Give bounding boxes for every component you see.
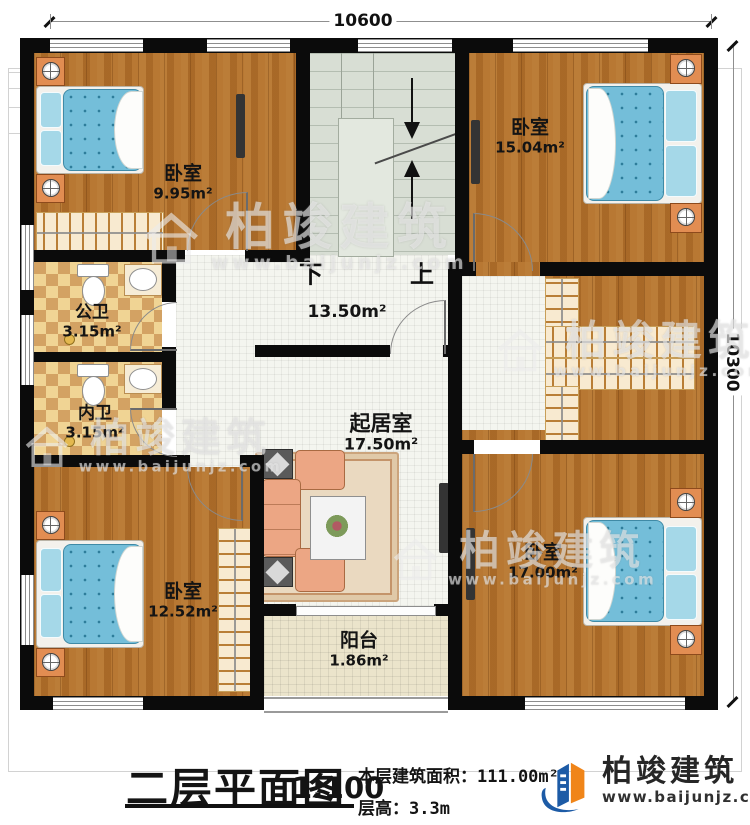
- wall-bedroom4-right: [250, 455, 264, 710]
- room-label-public-bathroom: 公卫 3.15m²: [62, 304, 121, 341]
- wall-stairs-bedroom2: [455, 38, 469, 262]
- floor-height-value: 3.3m: [409, 799, 450, 819]
- stair-arrow-stem: [411, 78, 413, 122]
- wall-outer-right: [704, 38, 718, 710]
- lamp-icon: [677, 493, 695, 511]
- nightstand: [670, 54, 702, 84]
- window: [21, 225, 34, 290]
- tv-icon: [471, 120, 480, 184]
- nightstand: [36, 57, 65, 86]
- room-area: 17.00m²: [508, 564, 578, 581]
- room-label-bedroom-top-left: 卧室 9.95m²: [153, 163, 212, 202]
- nightstand: [670, 203, 702, 233]
- room-name: 公卫: [75, 304, 109, 324]
- room-area: 3.15m²: [65, 424, 124, 441]
- wall-balcony-left: [250, 604, 296, 616]
- wall-bedroom1-stairs: [296, 38, 310, 262]
- bed-pillow: [40, 130, 62, 166]
- bed-blanket: [114, 91, 143, 169]
- window: [358, 39, 452, 52]
- plant-icon: [326, 515, 348, 537]
- room-area: 1.86m²: [329, 652, 388, 669]
- stair-arrow-stem: [411, 177, 413, 219]
- side-table: [262, 557, 293, 587]
- hall-area-label: 13.50m²: [308, 302, 387, 322]
- room-name: 阳台: [340, 630, 378, 652]
- bed-pillow: [40, 548, 62, 592]
- dimension-height: 10300: [722, 328, 742, 395]
- wardrobe: [218, 528, 252, 692]
- floor-plan-sheet: 卧室 9.95m² 卧室 15.04m² 公卫 3.15m² 内卫 3.15m²…: [0, 0, 750, 825]
- wall-bedroom3-top-stub: [448, 440, 474, 454]
- balcony-sliding-door: [296, 606, 436, 616]
- stair-stringer-line: [373, 53, 374, 118]
- lamp-icon: [677, 208, 695, 226]
- lamp-icon: [677, 59, 695, 77]
- room-label-bedroom-bottom-right: 卧室 17.00m²: [508, 542, 578, 581]
- bed-pillow: [40, 594, 62, 638]
- lamp-icon: [42, 516, 60, 534]
- sofa: [262, 479, 301, 557]
- room-name: 卧室: [524, 542, 562, 564]
- lamp-icon: [42, 62, 60, 80]
- sink-icon: [129, 368, 157, 390]
- closet-rack: [545, 326, 695, 358]
- brand-text: 柏竣建筑 www.baijunjz.com: [602, 755, 750, 806]
- balcony-railing: [264, 697, 448, 713]
- bed-pillow: [40, 92, 62, 128]
- window: [21, 315, 34, 385]
- stair-arrow-down-icon: [404, 122, 420, 139]
- bed-pillow: [665, 90, 697, 142]
- wall-living-right: [448, 262, 462, 710]
- room-area: 9.95m²: [153, 185, 212, 202]
- room-name: 卧室: [164, 581, 202, 603]
- lamp-icon: [42, 653, 60, 671]
- wall-bedroom2-bottom: [540, 262, 704, 276]
- floor-height-info: 层高：3.3m: [358, 794, 450, 819]
- closet-rack: [545, 386, 579, 442]
- wall-hall-living: [255, 345, 390, 357]
- brand-logo: 柏竣建筑 www.baijunjz.com: [538, 755, 750, 815]
- floor-corridor: [462, 276, 545, 430]
- stair-down-label: 下: [299, 255, 323, 290]
- side-table: [262, 449, 293, 479]
- room-label-balcony: 阳台 1.86m²: [329, 630, 388, 669]
- window: [525, 697, 685, 710]
- brand-logo-icon: [538, 755, 596, 815]
- room-label-bedroom-top-right: 卧室 15.04m²: [495, 117, 565, 156]
- nightstand: [670, 625, 702, 655]
- nightstand: [36, 174, 65, 203]
- dimension-width: 10600: [329, 11, 396, 31]
- tv-icon: [466, 528, 475, 600]
- room-name: 卧室: [164, 163, 202, 185]
- floor-area-label: 本层建筑面积：: [358, 767, 477, 787]
- title-underline: [125, 804, 354, 808]
- bed-pillow: [665, 574, 697, 620]
- room-label-private-bathroom: 内卫 3.15m²: [65, 405, 124, 442]
- bed-pillow: [665, 145, 697, 197]
- room-area: 17.50m²: [344, 436, 418, 454]
- toilet-icon: [82, 376, 105, 406]
- window: [21, 575, 34, 645]
- room-name: 起居室: [349, 412, 412, 436]
- lamp-icon: [677, 630, 695, 648]
- window: [53, 697, 143, 710]
- room-area: 15.04m²: [495, 139, 565, 156]
- window: [513, 39, 648, 52]
- wall-bathroom-right: [162, 262, 176, 302]
- window: [50, 39, 143, 52]
- brand-website: www.baijunjz.com: [602, 788, 750, 806]
- bed-pillow: [665, 526, 697, 572]
- wall-bedroom3-top: [540, 440, 704, 454]
- stair-up-label: 上: [410, 255, 434, 290]
- floor-area-info: 本层建筑面积：111.00m²: [358, 762, 559, 787]
- stair-landing: [338, 118, 394, 257]
- wardrobe: [36, 212, 164, 254]
- wall-balcony-right: [434, 604, 462, 616]
- toilet-icon: [82, 276, 105, 306]
- wall-bedroom4-top: [20, 455, 190, 467]
- sink-icon: [129, 268, 157, 291]
- room-label-bedroom-bottom-left: 卧室 12.52m²: [148, 581, 218, 620]
- brand-name: 柏竣建筑: [602, 755, 750, 788]
- armchair: [295, 450, 345, 490]
- wall-bathroom-divider: [34, 352, 176, 362]
- room-label-living-room: 起居室 17.50m²: [344, 412, 418, 455]
- dimension-ext: [50, 14, 51, 29]
- nightstand: [670, 488, 702, 518]
- stair-stringer-line: [341, 53, 342, 118]
- window: [207, 39, 290, 52]
- nightstand: [36, 648, 65, 677]
- bed-blanket: [114, 546, 143, 642]
- room-name: 内卫: [78, 405, 112, 425]
- wall-bedroom1-bottom: [20, 250, 185, 262]
- tv-icon: [236, 94, 245, 158]
- floor-height-label: 层高：: [358, 799, 409, 819]
- nightstand: [36, 511, 65, 540]
- lamp-icon: [42, 179, 60, 197]
- room-name: 卧室: [511, 117, 549, 139]
- dimension-ext: [711, 14, 712, 29]
- room-area: 12.52m²: [148, 603, 218, 620]
- closet-rack: [545, 278, 579, 330]
- room-area: 3.15m²: [62, 323, 121, 340]
- stair-arrow-up-icon: [404, 160, 420, 177]
